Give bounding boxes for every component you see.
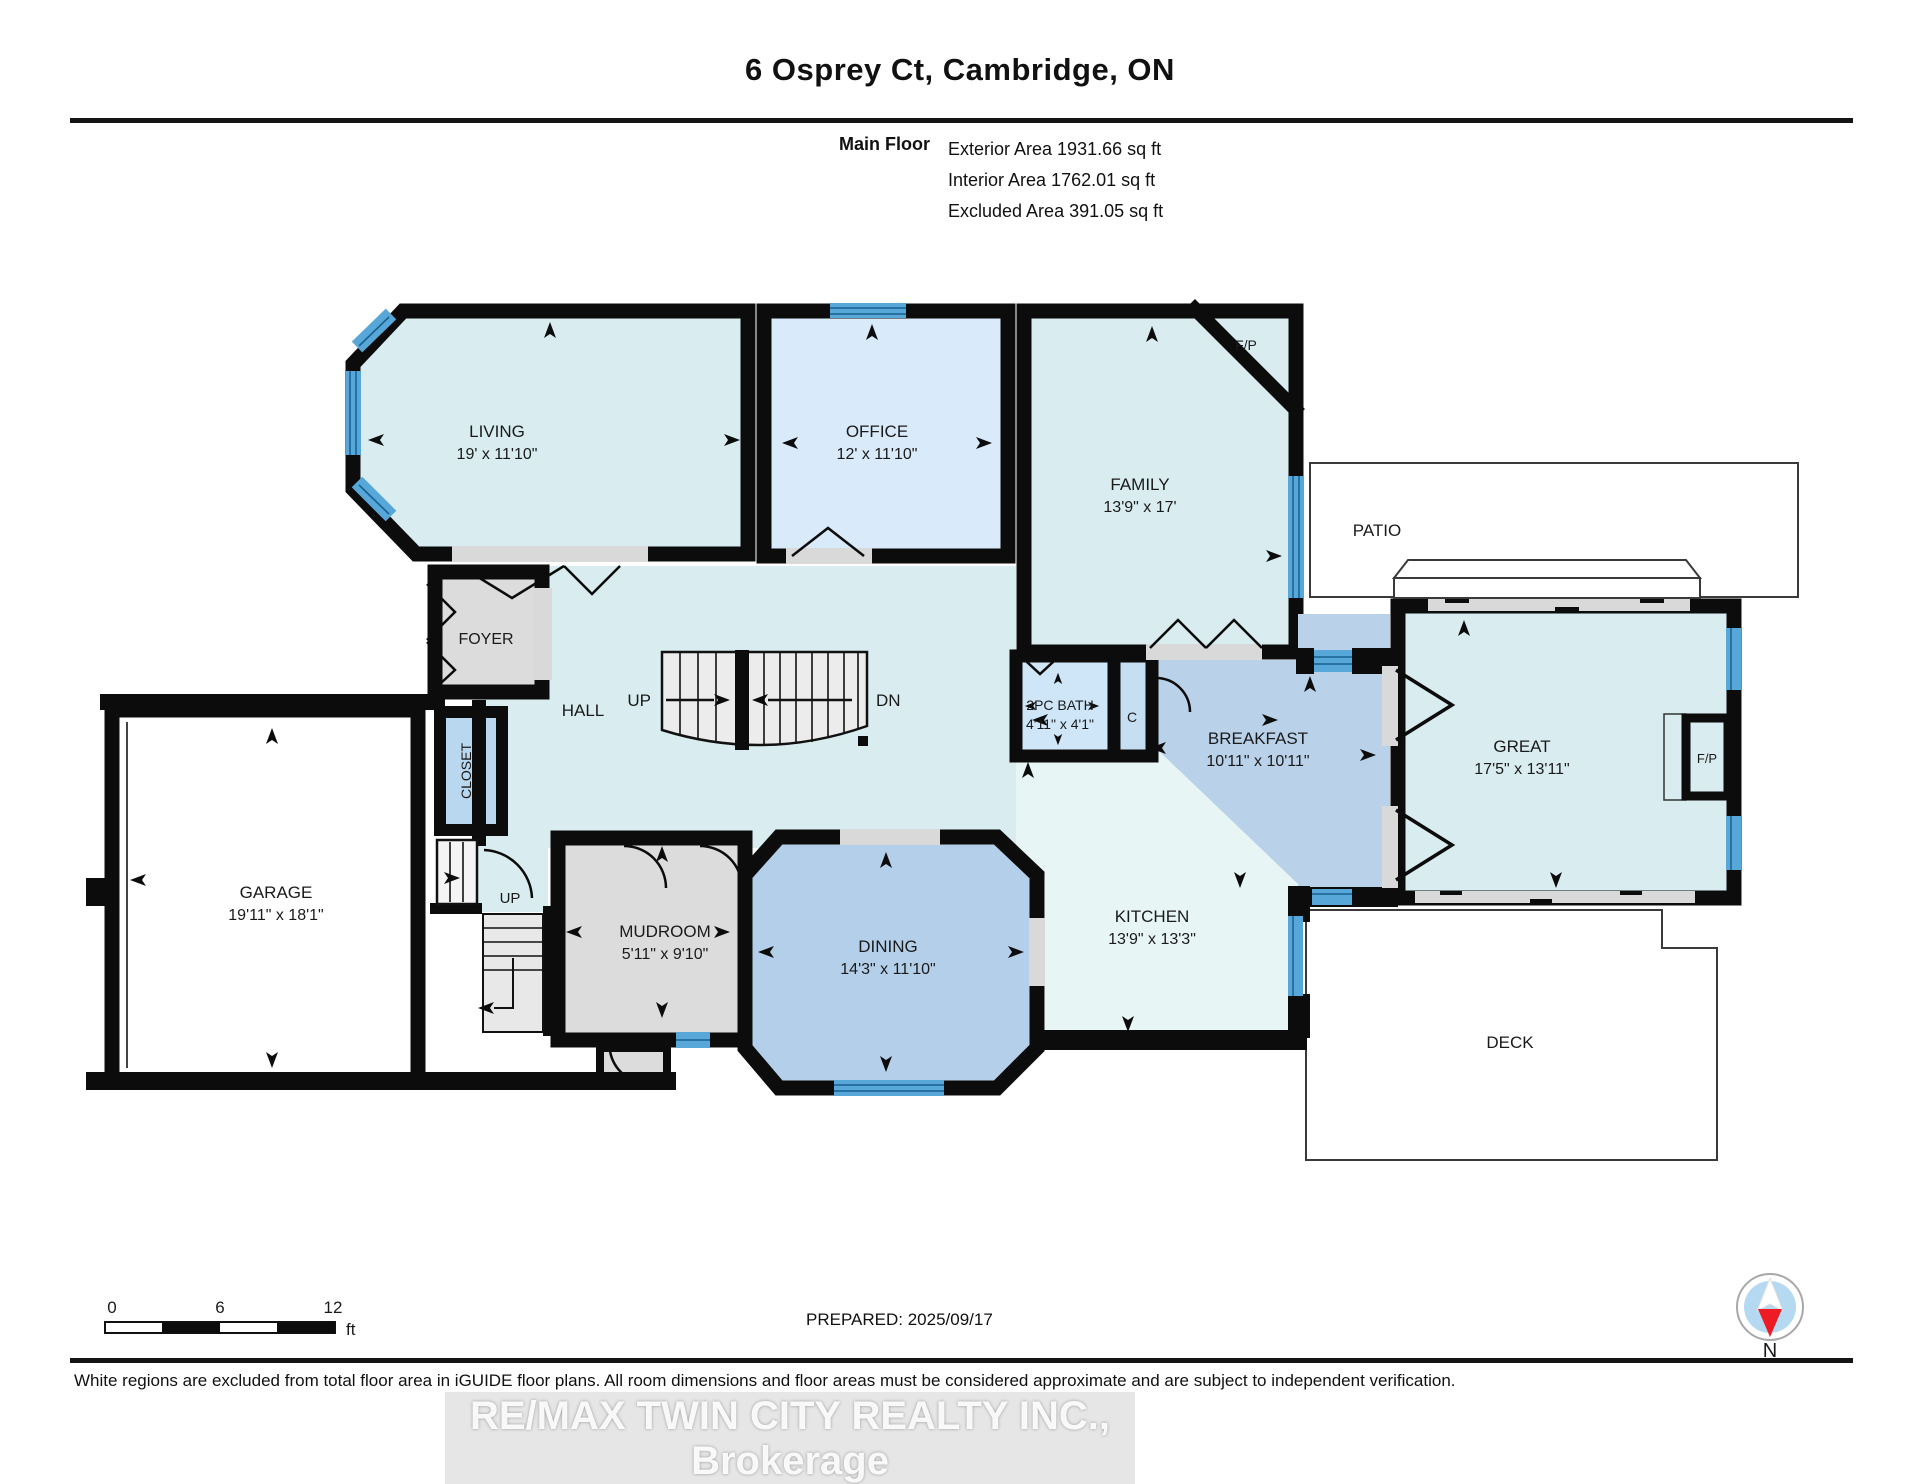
compass: N	[1737, 1274, 1803, 1362]
kitchen-label: KITCHEN	[1115, 907, 1190, 926]
great-dims: 17'5" x 13'11"	[1474, 761, 1569, 778]
stairs-dn-label: DN	[876, 691, 901, 710]
bath-dims: 4'11" x 4'1"	[1026, 716, 1094, 732]
living-dims: 19' x 11'10"	[457, 446, 538, 463]
breakfast-dims: 10'11" x 10'11"	[1206, 753, 1309, 770]
basement-stairs	[478, 914, 543, 1032]
stairs-up-label: UP	[627, 691, 651, 710]
office-dims: 12' x 11'10"	[837, 446, 918, 463]
bath-label: 2PC BATH	[1026, 697, 1093, 713]
breakfast-label: BREAKFAST	[1208, 729, 1308, 748]
office-label: OFFICE	[846, 422, 908, 441]
footer-divider	[70, 1358, 1853, 1363]
scale-12: 12	[324, 1298, 343, 1317]
main-staircase	[662, 650, 868, 750]
disclaimer-text: White regions are excluded from total fl…	[74, 1371, 1456, 1391]
mudroom-dims: 5'11" x 9'10"	[622, 946, 709, 963]
scale-unit: ft	[346, 1320, 356, 1339]
garage-dims: 19'11" x 18'1"	[228, 907, 323, 924]
patio-step-front	[1394, 578, 1700, 598]
garage-label: GARAGE	[240, 883, 313, 902]
dining-dims: 14'3" x 11'10"	[840, 961, 935, 978]
closet-c-label: C	[1127, 709, 1137, 725]
deck-label: DECK	[1486, 1033, 1534, 1052]
patio-label: PATIO	[1353, 521, 1402, 540]
scale-0: 0	[107, 1298, 116, 1317]
mudroom-label: MUDROOM	[619, 922, 711, 941]
patio-step-top	[1394, 560, 1700, 578]
family-label: FAMILY	[1110, 475, 1169, 494]
foyer-label: FOYER	[458, 631, 513, 648]
dining-label: DINING	[858, 937, 918, 956]
floorplan-drawing: LIVING 19' x 11'10" OFFICE 12' x 11'10" …	[0, 0, 1920, 1484]
living-label: LIVING	[469, 422, 525, 441]
closet-label: CLOSET	[458, 743, 474, 799]
floorplan-page: 6 Osprey Ct, Cambridge, ON Main Floor Ex…	[0, 0, 1920, 1484]
hall-label: HALL	[562, 701, 605, 720]
scale-6: 6	[215, 1298, 224, 1317]
scale-bar: 0 6 12 ft	[105, 1298, 356, 1339]
great-fireplace-label: F/P	[1697, 751, 1717, 766]
prepared-date: PREPARED: 2025/09/17	[806, 1310, 993, 1330]
family-dims: 13'9" x 17'	[1103, 499, 1176, 516]
family-fireplace-label: F/P	[1235, 337, 1257, 353]
brokerage-watermark: RE/MAX TWIN CITY REALTY INC., Brokerage	[445, 1392, 1135, 1484]
great-label: GREAT	[1493, 737, 1550, 756]
side-stairs-up-label: UP	[500, 890, 521, 907]
kitchen-dims: 13'9" x 13'3"	[1108, 931, 1196, 948]
